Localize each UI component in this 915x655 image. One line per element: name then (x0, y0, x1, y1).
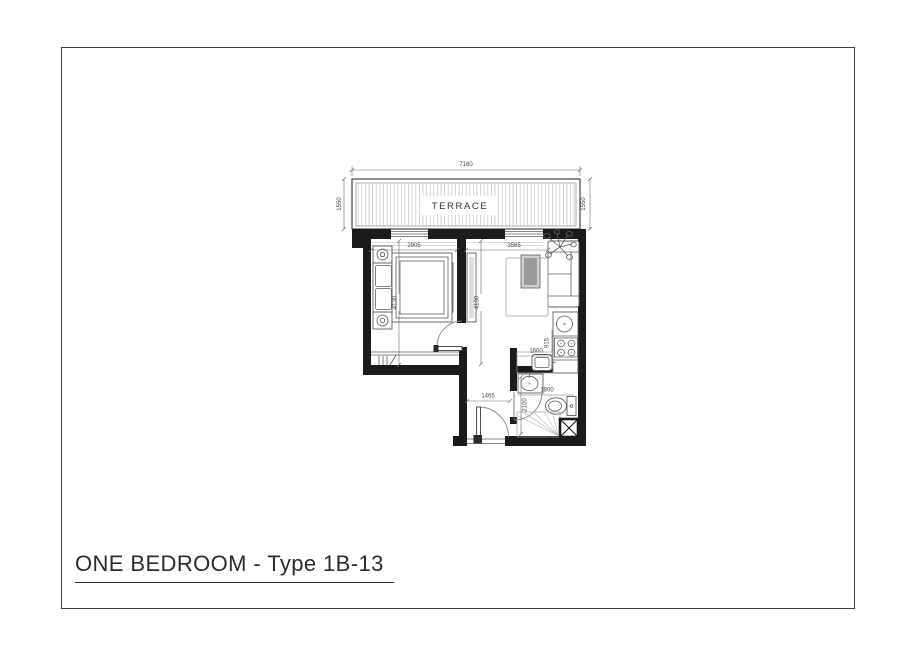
coffee-table (506, 255, 548, 316)
dim-1550-left: 1550 (337, 197, 343, 211)
washbasin (518, 374, 543, 393)
terrace-label: TERRACE (432, 201, 489, 212)
wardrobe (371, 352, 459, 365)
dimension-terrace-width: 7160 (350, 162, 582, 176)
dim-1800: 1800 (540, 388, 554, 394)
dimension-terrace-depth-right: 1550 (581, 177, 592, 231)
plan-title-text: ONE BEDROOM - Type 1B-13 (75, 551, 384, 576)
entry-door (474, 407, 509, 444)
terrace: TERRACE (352, 179, 580, 229)
dim-1600: 1600 (529, 349, 543, 355)
nightstand-top (373, 246, 392, 263)
dimension-hall-width: 1465 (465, 394, 512, 404)
drawing-sheet: TERRACE 7160 1550 1550 (0, 0, 915, 655)
dim-915: 915 (545, 337, 551, 348)
shower (517, 412, 560, 437)
dim-4130-living: 4130 (475, 295, 481, 309)
plan-title: ONE BEDROOM - Type 1B-13 (75, 551, 394, 583)
dimension-terrace-depth-left: 1550 (337, 177, 346, 231)
toilet (546, 397, 577, 416)
bedroom-door (434, 321, 463, 352)
dim-1465: 1465 (481, 394, 495, 400)
dim-4130-bedroom: 4130 (393, 295, 399, 309)
entry-threshold (467, 439, 505, 444)
nightstand-bottom (373, 312, 392, 329)
dim-2905: 2905 (407, 243, 421, 249)
bed (373, 253, 453, 322)
dim-1550-right: 1550 (581, 197, 587, 211)
dim-3565: 3565 (507, 243, 521, 249)
tv-unit (467, 253, 476, 322)
dim-7160: 7160 (459, 162, 473, 168)
dimension-living-width: 3565 (464, 243, 550, 252)
dim-2100: 2100 (523, 398, 529, 412)
service-shaft (560, 419, 578, 437)
